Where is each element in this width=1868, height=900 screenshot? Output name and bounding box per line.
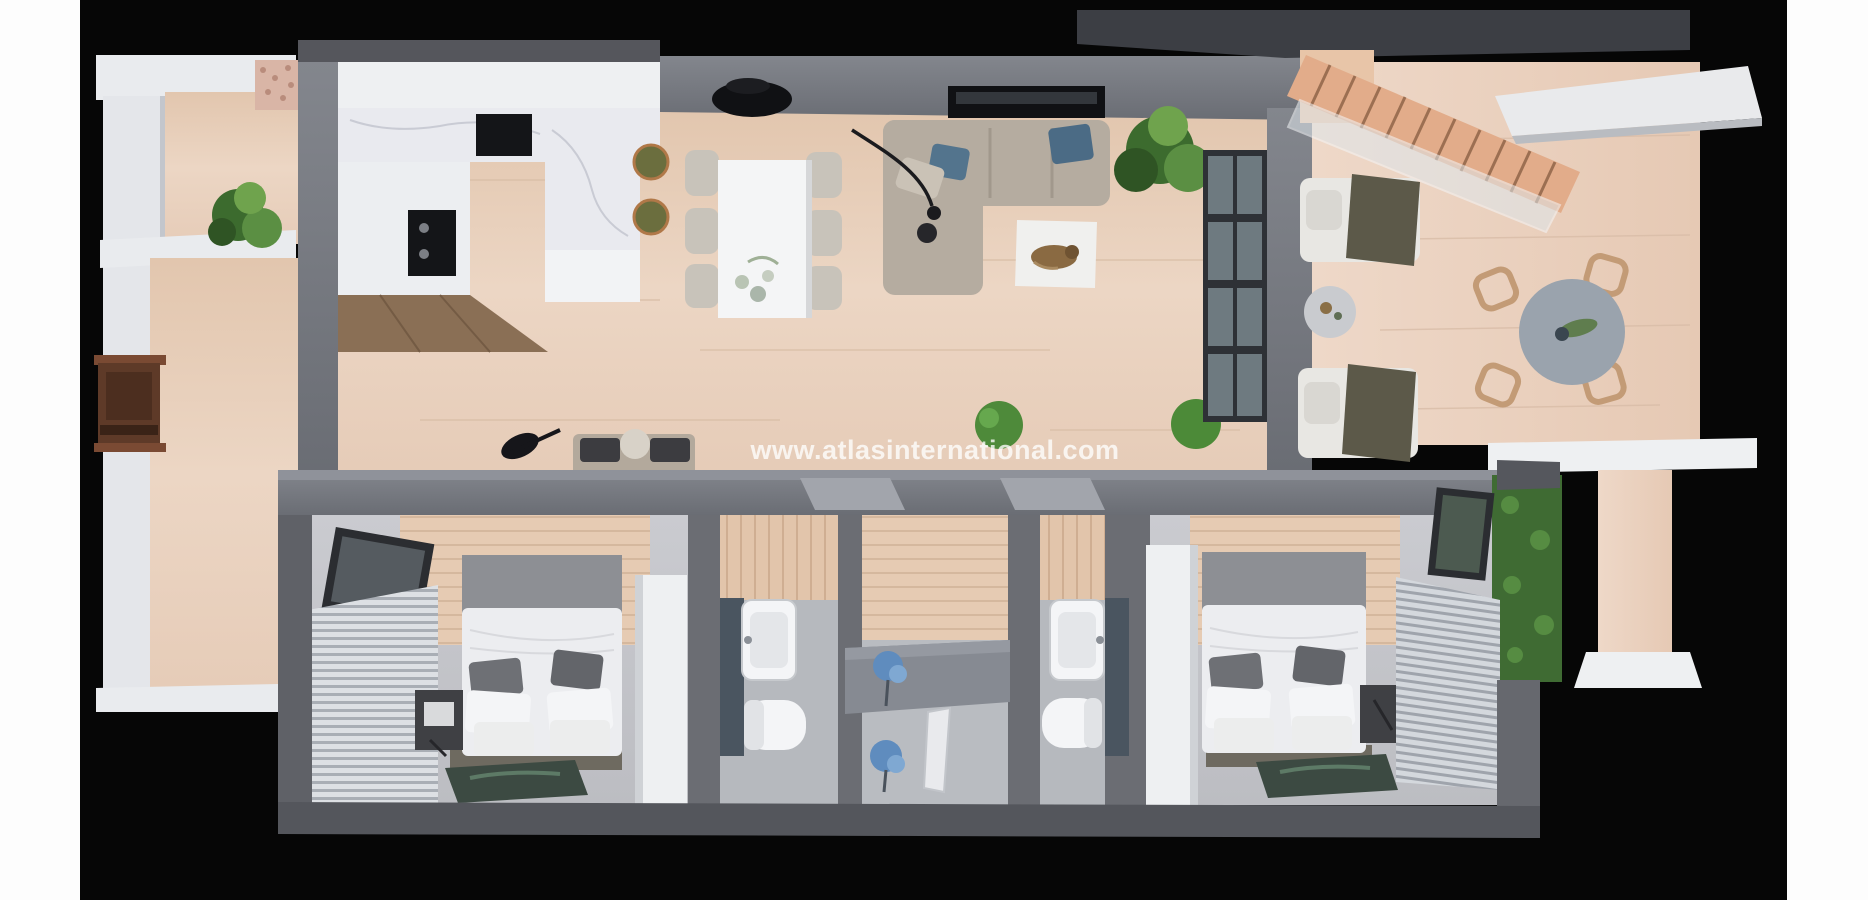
nightstand xyxy=(415,690,463,756)
wall-top-light xyxy=(278,470,1540,480)
round-side-table xyxy=(1304,286,1356,338)
bathroom-right xyxy=(1042,598,1129,756)
lower-deck-cap xyxy=(1574,652,1702,688)
wall-bed1-bath1 xyxy=(688,515,720,805)
left-page-margin xyxy=(0,0,80,900)
wardrobe-shadow xyxy=(1190,545,1198,805)
lower-block xyxy=(278,460,1562,838)
outer-left-wall xyxy=(278,515,312,815)
bathroom-left-wood-wall xyxy=(720,515,838,600)
dividing-wall xyxy=(278,470,1540,515)
sliding-glass-door xyxy=(1203,150,1267,422)
oven-knob xyxy=(419,249,429,259)
dining-area xyxy=(685,150,842,318)
marble-island xyxy=(545,108,640,253)
rug-with-dog xyxy=(1015,220,1097,288)
oven-knob xyxy=(419,223,429,233)
gray-pillow xyxy=(550,649,604,691)
wardrobe-shadow xyxy=(635,575,643,805)
upper-floor xyxy=(298,40,1312,490)
outer-right-wall xyxy=(1497,680,1540,810)
louver-blinds xyxy=(1396,577,1500,790)
toilet xyxy=(1042,698,1102,748)
washbasin xyxy=(1050,600,1104,680)
table-shadow-edge xyxy=(806,160,812,318)
watermark: www.atlasinternational.com xyxy=(749,435,1119,465)
wall-hall-bath2 xyxy=(1008,515,1040,805)
white-pillow xyxy=(474,722,534,756)
window-sill-right xyxy=(1000,478,1105,510)
ceiling-lamp-top xyxy=(726,78,770,94)
entrance-door xyxy=(94,355,166,452)
sun-lounger-top xyxy=(1300,174,1420,266)
blue-cushion xyxy=(1048,123,1095,164)
lower-deck-strip xyxy=(1598,470,1672,652)
toilet xyxy=(744,700,806,750)
canopy-headboard xyxy=(462,555,622,613)
outer-right-stub xyxy=(1497,460,1560,490)
balcony-lower-deck xyxy=(150,258,298,690)
kitchen-wall-cabinets xyxy=(298,62,660,110)
table-bowl xyxy=(1555,327,1569,341)
sun-lounger-bottom xyxy=(1298,364,1418,462)
window-sill-left xyxy=(800,478,905,510)
oven xyxy=(408,210,456,276)
mosaic-wall xyxy=(1105,598,1129,756)
white-pillow xyxy=(1292,716,1352,750)
window xyxy=(1428,487,1495,581)
double-bed xyxy=(1202,552,1372,767)
right-page-margin xyxy=(1787,0,1868,900)
floor-plan-render: www.atlasinternational.com xyxy=(0,0,1868,900)
tv-screen-glare xyxy=(956,92,1097,104)
small-plant-highlight xyxy=(979,408,999,428)
double-bed xyxy=(450,555,622,770)
washbasin xyxy=(742,600,796,680)
hallway-wood-floor xyxy=(862,515,1008,640)
white-pillow xyxy=(550,720,610,754)
lamp-joint xyxy=(927,206,941,220)
island-front xyxy=(545,250,640,302)
mosaic-wall xyxy=(720,598,744,756)
floor-plan-svg: www.atlasinternational.com xyxy=(0,0,1868,900)
canopy-headboard xyxy=(1202,552,1366,610)
balcony-bottom-parapet xyxy=(96,684,278,712)
cooktop xyxy=(476,114,532,156)
bathroom-left xyxy=(720,598,806,756)
white-pillow xyxy=(1214,718,1274,752)
living-left-wall xyxy=(298,62,338,470)
balcony-left xyxy=(94,55,298,712)
lamp-shade xyxy=(917,223,937,243)
outer-bottom-wall xyxy=(278,802,1540,838)
gray-pillow xyxy=(1292,645,1346,687)
